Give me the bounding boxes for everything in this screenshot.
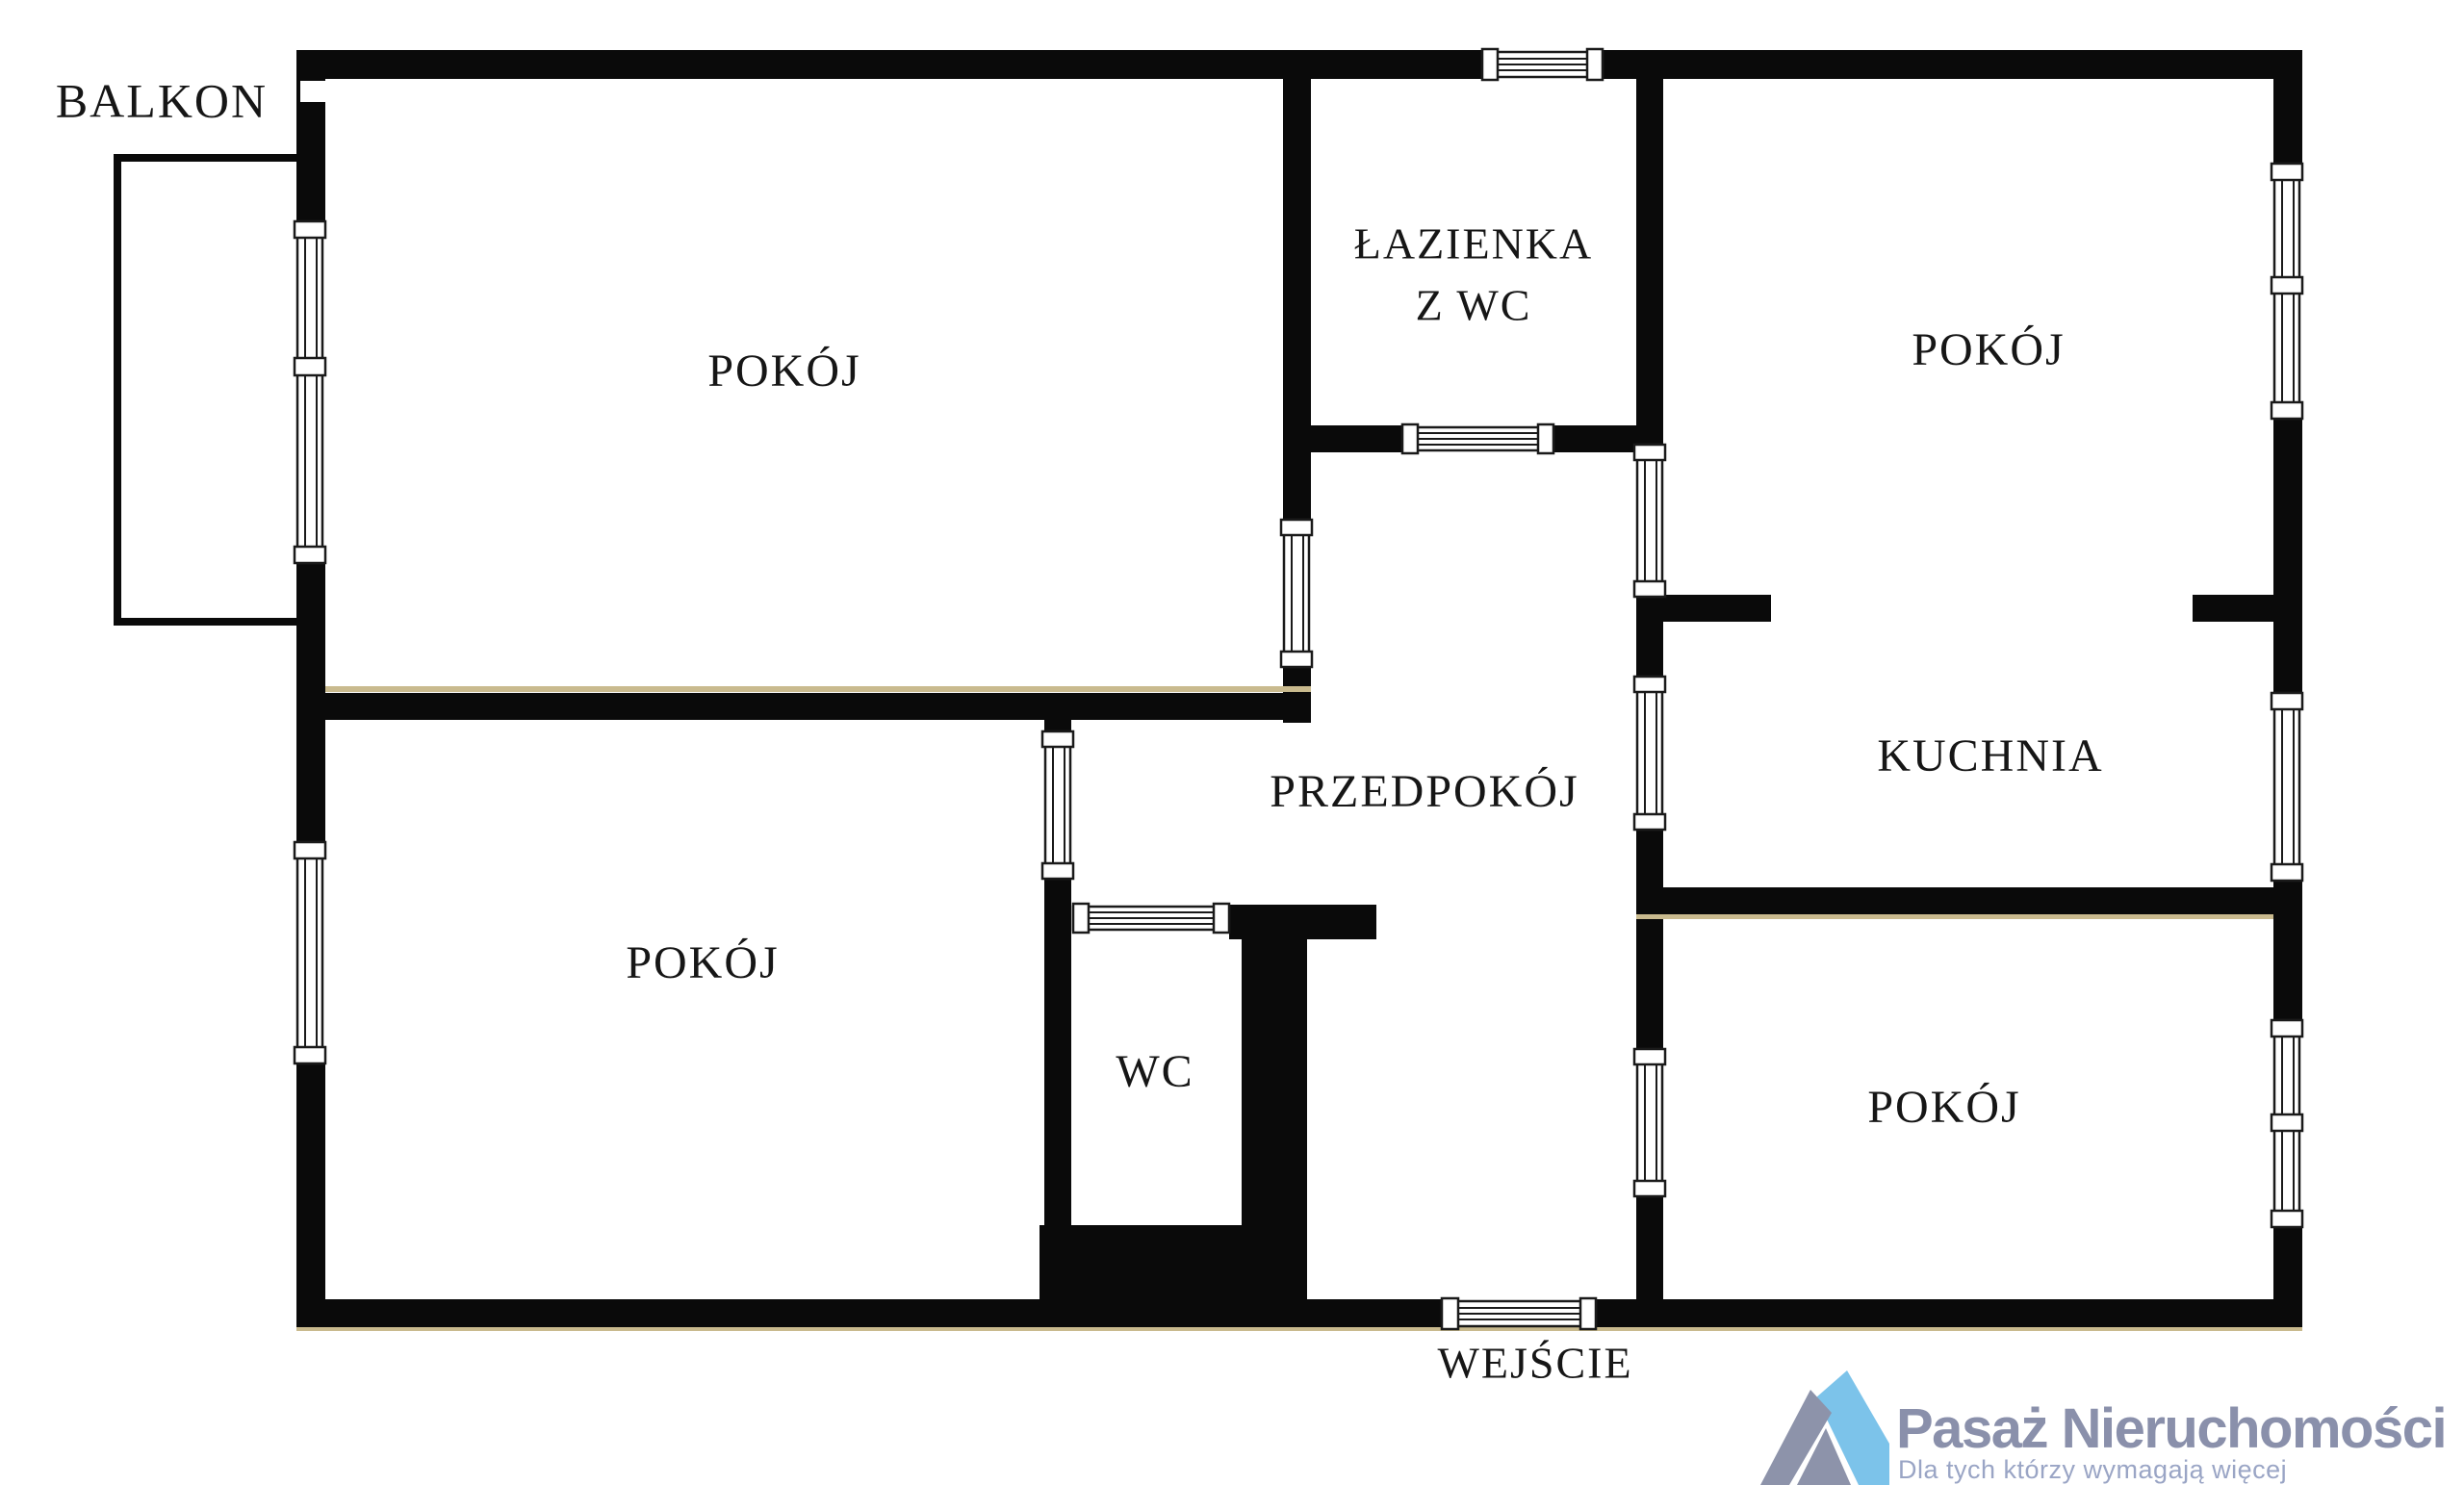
wall-room-bl-right-upper <box>1044 720 1071 731</box>
accent-below-bottom-wall <box>296 1327 2302 1331</box>
label-room-bottom-left: POKÓJ <box>626 936 779 988</box>
window-top-wall <box>1482 49 1603 80</box>
wall-left-rooms-divider <box>325 693 1311 720</box>
label-room-top-right: POKÓJ <box>1912 323 2065 375</box>
label-room-bottom-right: POKÓJ <box>1867 1081 2020 1133</box>
wall-top-right-segment <box>1603 50 2302 79</box>
label-room-top-left: POKÓJ <box>707 345 860 397</box>
wall-central-vertical-a <box>1636 79 1663 445</box>
balcony-top-line <box>114 154 296 162</box>
label-kitchen: KUCHNIA <box>1877 730 2103 781</box>
wall-left-middle <box>296 563 325 842</box>
window-room-bl <box>295 842 325 1063</box>
wall-kitchen-bottom <box>1636 887 2273 914</box>
wall-wc-bottom-block <box>1039 1225 1307 1328</box>
window-room-br <box>2271 1020 2302 1227</box>
window-hallway-kitchen <box>1634 677 1665 830</box>
window-kitchen <box>2271 693 2302 881</box>
wall-right-a <box>2273 79 2302 164</box>
wall-central-vertical-b <box>1636 597 1663 677</box>
window-balcony <box>295 221 325 563</box>
door-entrance <box>1442 1298 1596 1329</box>
door-room-br <box>1634 1049 1665 1196</box>
window-room-tl-hallway <box>1281 520 1312 667</box>
agency-tagline: Dla tych którzy wymagają więcej <box>1898 1455 2287 1484</box>
balcony-left-line <box>114 154 121 626</box>
wall-left-lower <box>296 1063 325 1326</box>
wall-room-tl-right-upper <box>1283 79 1311 520</box>
wall-right-c <box>2273 881 2302 1020</box>
floor-plan-canvas: BALKON POKÓJ ŁAZIENKA Z WC POKÓJ PRZEDPO… <box>0 0 2464 1485</box>
door-room-tr <box>1634 445 1665 597</box>
wall-kitchen-top-stub-left <box>1663 595 1771 622</box>
accent-above-divider <box>325 686 1311 692</box>
wall-right-b <box>2273 419 2302 693</box>
balcony-bottom-line <box>114 618 296 626</box>
duct-shaft <box>1242 932 1307 1234</box>
wall-kitchen-top-stub-right <box>2193 595 2273 622</box>
wall-central-vertical-c <box>1636 830 1663 1049</box>
label-bathroom-line2: Z WC <box>1416 281 1532 330</box>
door-wc <box>1073 904 1229 933</box>
window-room-tr <box>2271 164 2302 419</box>
door-bathroom <box>1402 424 1553 453</box>
label-balcony: BALKON <box>56 73 268 127</box>
label-hallway: PRZEDPOKÓJ <box>1270 765 1578 817</box>
label-wc: WC <box>1116 1046 1193 1097</box>
wall-top-left-segment <box>296 50 1482 79</box>
wall-central-vertical-d <box>1636 1196 1663 1299</box>
agency-name: Pasaż Nieruchomości <box>1896 1397 2446 1460</box>
wall-bathroom-bottom-left <box>1311 425 1402 452</box>
label-bathroom-line1: ŁAZIENKA <box>1354 219 1594 269</box>
wall-room-tl-right-lower <box>1283 667 1311 723</box>
wall-bottom-right-segment <box>1596 1299 2302 1328</box>
label-entrance: WEJŚCIE <box>1437 1339 1632 1388</box>
window-room-bl-hallway <box>1042 731 1073 879</box>
accent-below-kitchen-wall <box>1636 914 2273 919</box>
corner-notch <box>300 81 364 102</box>
wall-bathroom-bottom-right <box>1553 425 1636 452</box>
